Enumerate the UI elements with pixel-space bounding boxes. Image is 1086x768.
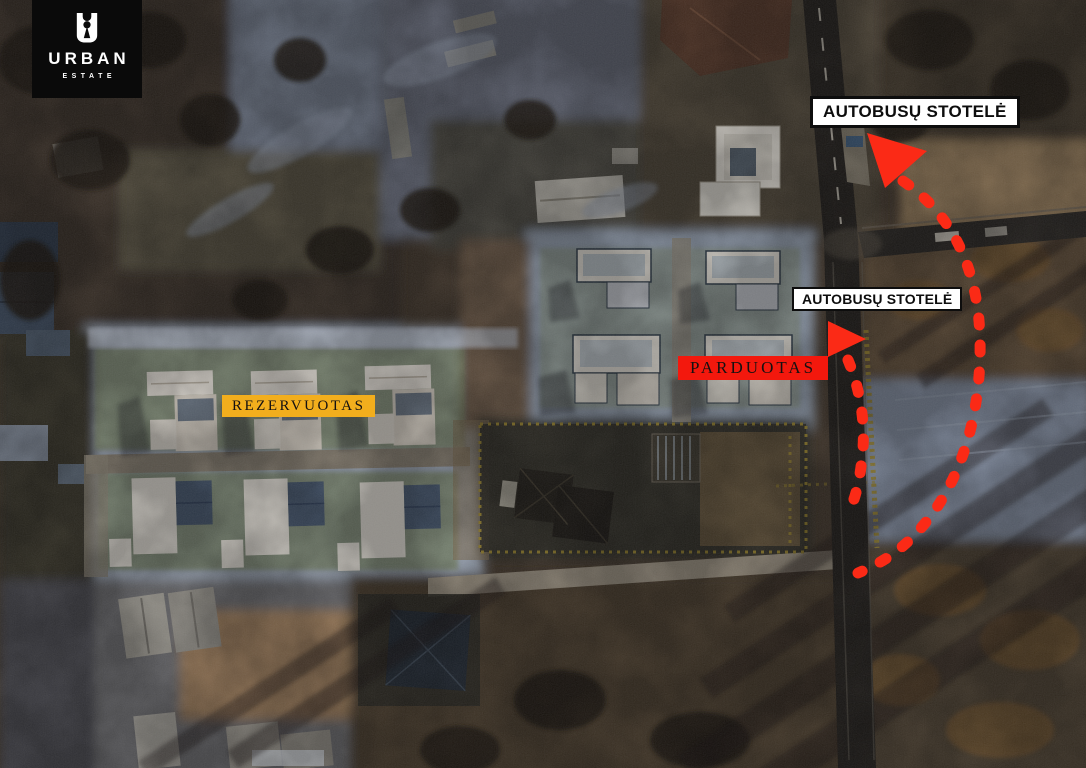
aerial-site-photo: URBAN ESTATE AUTOBUSŲ STOTELĖ AUTOBUSŲ S… xyxy=(0,0,1086,768)
reserved-status-tag: REZERVUOTAS xyxy=(222,395,375,417)
bus-stop-label-top: AUTOBUSŲ STOTELĖ xyxy=(810,96,1020,128)
logo-sub-text: ESTATE xyxy=(58,73,116,80)
keyhole-icon xyxy=(74,13,100,43)
sold-status-tag: PARDUOTAS xyxy=(678,356,828,380)
logo-brand-text: URBAN xyxy=(44,49,129,69)
bus-stop-label-mid: AUTOBUSŲ STOTELĖ xyxy=(792,287,962,311)
urban-estate-logo: URBAN ESTATE xyxy=(32,0,142,98)
